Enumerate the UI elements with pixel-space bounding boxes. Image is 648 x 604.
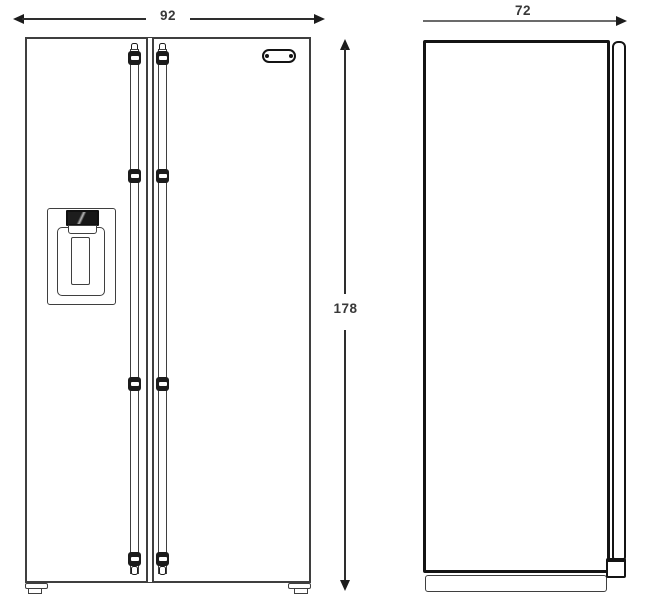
height-dimension-label: 178	[327, 301, 364, 317]
handle-bracket	[156, 377, 169, 391]
foot-block	[294, 588, 308, 594]
diagram-canvas: 92	[0, 0, 648, 604]
arrowhead-down-icon	[340, 580, 350, 591]
dispenser-bezel	[68, 225, 97, 234]
handle-bracket	[156, 552, 169, 566]
badge-screw-right-icon	[289, 54, 293, 58]
handle-bar	[158, 49, 167, 574]
handle-bracket	[128, 169, 141, 183]
width-dimension-line-left	[22, 18, 146, 20]
depth-dimension-label: 72	[505, 3, 541, 19]
dispenser-display	[66, 210, 99, 226]
foot-block	[28, 588, 42, 594]
arrowhead-right-icon	[314, 14, 325, 24]
arrowhead-right-icon	[616, 16, 627, 26]
side-plinth	[425, 575, 607, 592]
handle-bottom-cap	[131, 566, 138, 575]
badge-screw-left-icon	[265, 54, 269, 58]
handle-bracket	[128, 377, 141, 391]
door-divider	[146, 38, 154, 582]
width-dimension: 92	[0, 0, 360, 32]
handle-bracket	[128, 552, 141, 566]
fridge-side-view: 72	[360, 0, 648, 604]
fridge-body-outline	[25, 37, 311, 583]
width-dimension-label: 92	[150, 8, 186, 24]
height-dimension-line-bottom	[344, 330, 346, 581]
width-dimension-line-right	[190, 18, 314, 20]
depth-dimension-line	[423, 20, 619, 22]
side-cabinet-outline	[423, 40, 610, 573]
handle-bracket	[156, 51, 169, 65]
brand-badge	[262, 49, 296, 63]
handle-bar	[130, 49, 139, 574]
height-dimension-line-top	[344, 48, 346, 294]
side-door-foot	[606, 558, 626, 578]
handle-bracket	[156, 169, 169, 183]
dispenser-slot	[71, 237, 90, 285]
handle-bottom-cap	[159, 566, 166, 575]
fridge-front-view: 92	[0, 0, 360, 604]
side-door-profile	[612, 41, 626, 563]
handle-bracket	[128, 51, 141, 65]
